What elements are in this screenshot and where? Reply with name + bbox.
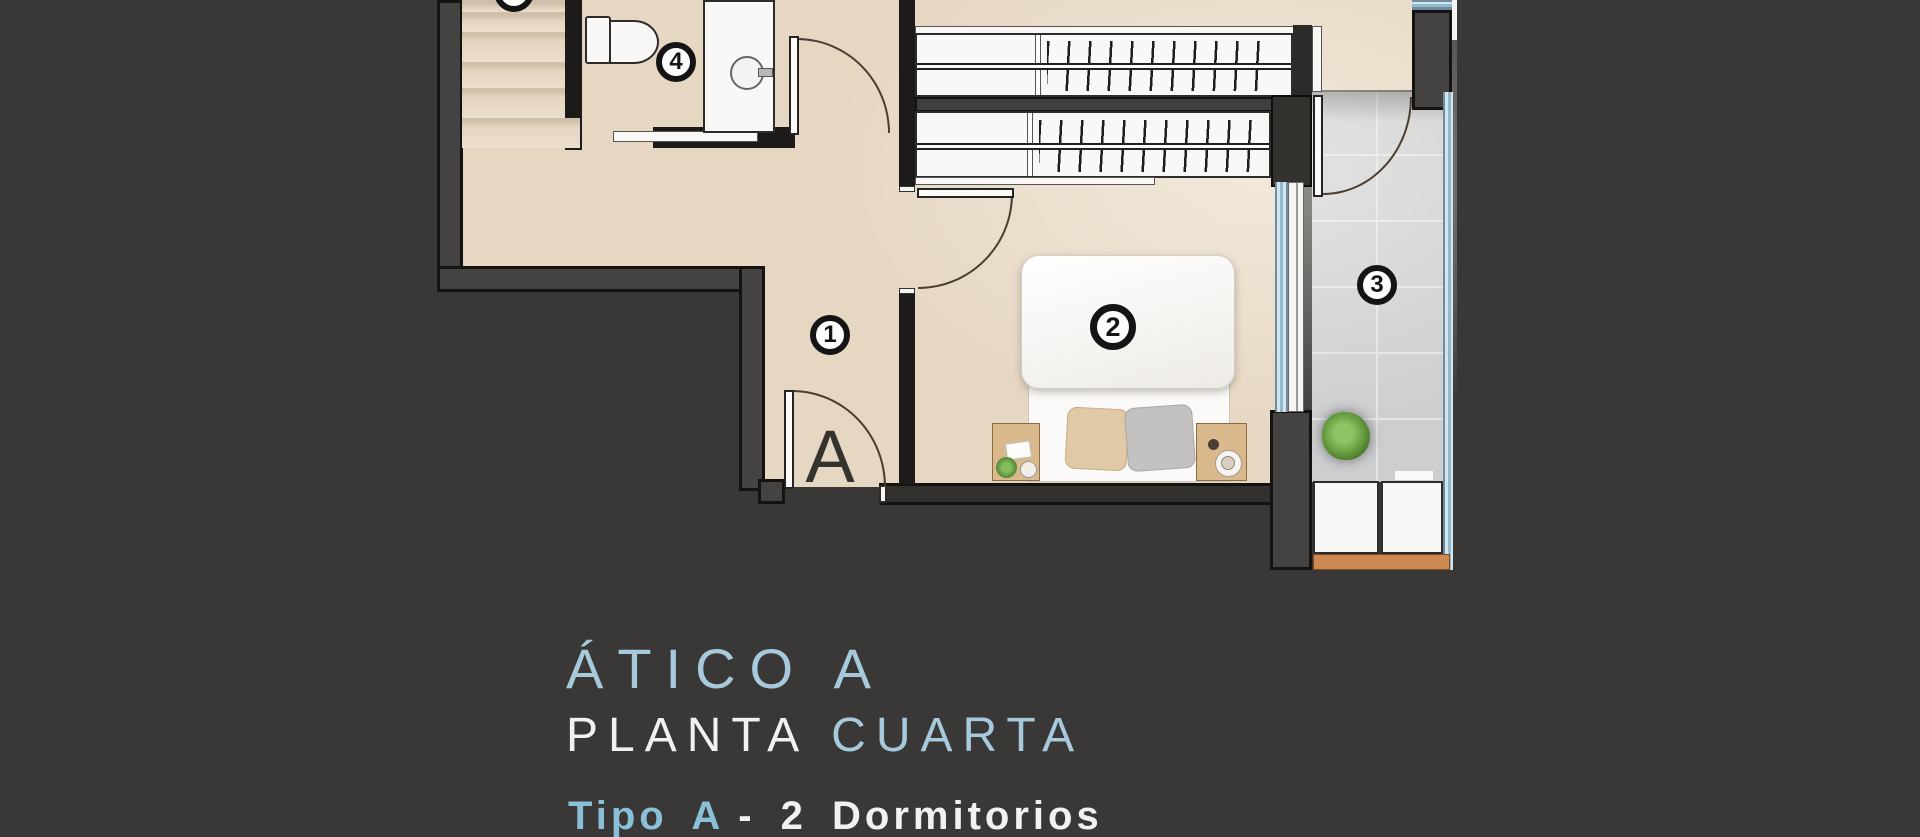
marker-label: 3 [1370,271,1383,299]
terrace-top-white-sliver [1452,0,1457,40]
wardrobe-bottom [915,111,1271,178]
wood-trim-strip [1313,554,1450,570]
title-text: ÁTICO A [566,637,885,700]
type-label-white: - 2 Dormitorios [738,794,1102,837]
bathroom-door-leaf [789,36,799,135]
marker-label: 4 [669,48,682,76]
bedroom-door-leaf [917,188,1014,198]
lamp-icon [1020,461,1037,478]
bottom-left-wall [437,266,765,292]
entrance-wall-block [758,479,785,504]
stairs-icon [462,0,565,150]
terrace-top-window-glass [1412,0,1452,10]
plant-small-icon [996,457,1017,478]
terrace-threshold [1312,90,1412,92]
floor-plan-image: 1 2 3 4 A ÁTICO A PLANTACUARTA Tipo A- 2… [0,0,1920,837]
toilet-bowl [609,20,659,64]
mid-vertical-wall [739,266,765,491]
type-label: Tipo A- 2 Dormitorios [568,794,1103,837]
closet-end-pillar-top [1293,25,1312,97]
pillow-gray [1124,404,1196,473]
terrace-white-marker [1395,471,1433,480]
room-marker-bedroom: 2 [1090,304,1136,350]
marker-label: 2 [1105,312,1120,343]
terrace-door-leaf [1313,95,1323,197]
entrance-letter: A [790,414,870,499]
partition-upper-cap [899,186,915,192]
room-marker-hallway: 1 [810,315,850,355]
room-marker-terrace: 3 [1357,265,1397,305]
closet-end-block [1271,95,1312,187]
left-outer-wall [437,0,463,292]
marker-label: 1 [823,321,836,349]
knob-icon [1208,439,1219,450]
partition-upper [899,0,915,186]
terrace-cabinet-right [1381,481,1443,554]
toilet-icon [585,16,611,64]
cup-icon [1221,456,1235,470]
type-label-blue: Tipo A [568,794,724,837]
closet-end-white-strip [1312,26,1322,92]
floor-subtitle-blue: CUARTA [831,709,1084,762]
faucet-icon [758,68,773,77]
partition-lower-cap [899,288,915,294]
terrace-right-glass [1443,92,1453,570]
room-marker-bathroom: 4 [656,42,696,82]
partition-lower [899,288,915,484]
bottom-wall-end-cap [879,485,887,503]
bedroom-bottom-wall [879,483,1276,505]
pillow-beige [1064,406,1129,471]
window-frame-strip [1288,182,1304,412]
closet-bottom-strip [915,177,1155,185]
page-title: ÁTICO A [566,636,885,701]
floor-subtitle: PLANTACUARTA [566,708,1084,763]
window-glass-icon [1275,182,1288,412]
wardrobe-top [915,33,1293,97]
closet-middle-slab [915,97,1297,112]
floor-subtitle-white: PLANTA [566,709,809,762]
bedroom-terrace-corner-wall [1270,410,1312,570]
plant-icon [1322,412,1370,460]
terrace-cabinets-icon [1313,481,1379,554]
